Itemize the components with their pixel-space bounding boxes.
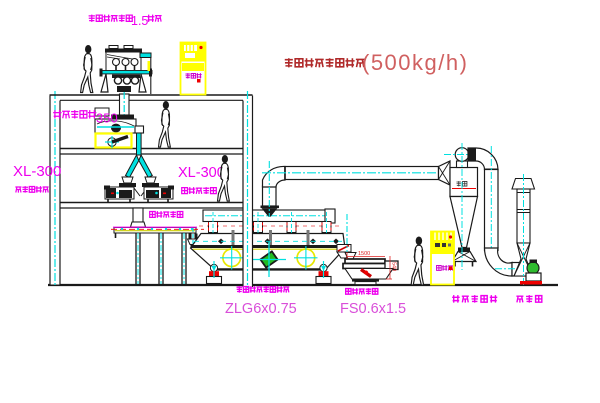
svg-text:XL-300: XL-300 xyxy=(13,163,61,180)
svg-text:(500kg/h): (500kg/h) xyxy=(362,50,468,75)
svg-text:540: 540 xyxy=(391,262,397,271)
svg-text:FS0.6x1.5: FS0.6x1.5 xyxy=(340,301,406,317)
svg-text:350: 350 xyxy=(96,111,118,126)
svg-text:XL-300: XL-300 xyxy=(178,165,225,181)
svg-text:ZLG6x0.75: ZLG6x0.75 xyxy=(225,301,297,317)
svg-text:1.5: 1.5 xyxy=(131,14,148,28)
